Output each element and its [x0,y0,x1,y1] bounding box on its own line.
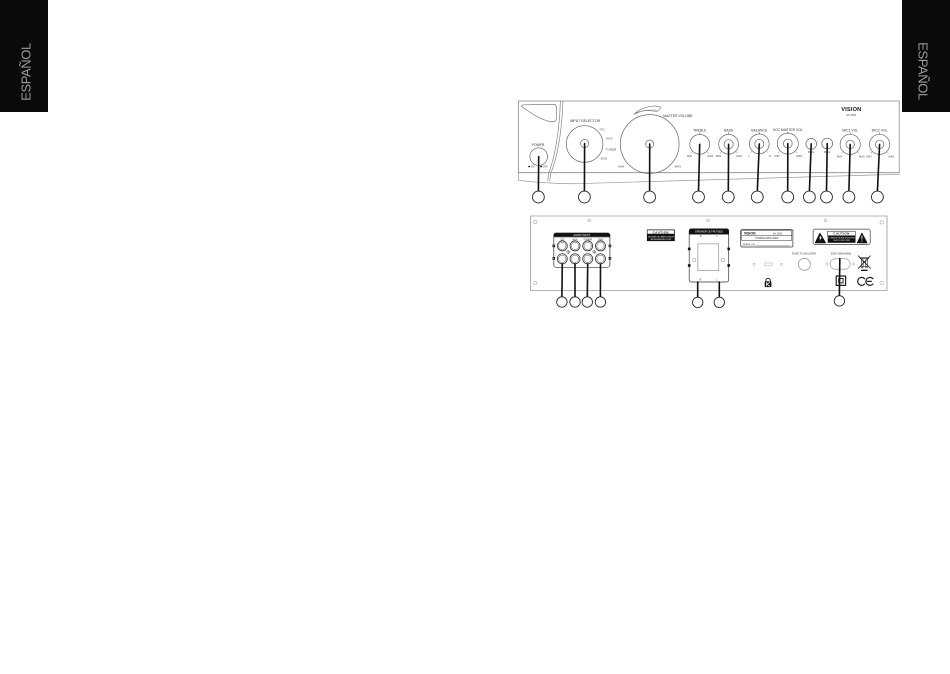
svg-text:MAX: MAX [737,154,743,158]
svg-text:BEFORE REMOVING COVER: BEFORE REMOVING COVER [651,239,672,241]
svg-text:AV-1500: AV-1500 [773,232,783,235]
svg-text:–PC: –PC [599,128,606,132]
svg-text:▼: ▼ [727,132,729,135]
svg-text:POWER AMPLIFIER: POWER AMPLIFIER [755,237,778,240]
svg-text:SHOCK DO NOT OPEN: SHOCK DO NOT OPEN [833,240,849,242]
svg-text:MAX: MAX [797,154,803,158]
svg-text:MAX: MAX [889,155,895,159]
svg-text:▼: ▼ [878,132,880,135]
svg-text:MAX: MAX [859,155,865,159]
svg-text:R: R [700,235,702,238]
svg-text:ON: ON [531,166,535,168]
svg-text:· TUNER: · TUNER [604,147,617,151]
svg-text:MAX: MAX [708,154,714,158]
svg-text:▼: ▼ [699,132,701,135]
svg-text:OFF: OFF [543,166,548,168]
svg-text:▼: ▼ [787,132,789,135]
svg-text:SPEAKER OUTPUT(8Ω): SPEAKER OUTPUT(8Ω) [695,231,723,234]
svg-text:▼: ▼ [849,132,851,135]
svg-text:MIN: MIN [837,155,842,159]
svg-text:VISION: VISION [744,232,756,236]
svg-text:MIN: MIN [867,155,872,159]
svg-text:VISION: VISION [841,107,861,113]
svg-text:SERIAL NO.:: SERIAL NO.: [743,243,757,246]
svg-text:–DVD: –DVD [599,156,608,160]
svg-text:MIN ·: MIN · [619,165,626,169]
svg-text:· AUX: · AUX [605,137,613,141]
svg-text:· MAX: · MAX [673,165,681,169]
svg-text:MIN: MIN [775,154,780,158]
svg-text:MIN: MIN [716,154,721,158]
svg-text:CAUTION: CAUTION [833,232,849,236]
svg-text:MASTER VOLUME: MASTER VOLUME [663,114,693,118]
svg-text:POWER: POWER [532,143,545,147]
svg-text:FUSE T3.15AL/250V: FUSE T3.15AL/250V [792,252,816,256]
svg-text:MIN: MIN [687,154,692,158]
svg-text:INPUT SELECTOR: INPUT SELECTOR [570,119,601,123]
svg-text:CAUTION: CAUTION [653,230,669,234]
svg-text:AUDIO INPUT: AUDIO INPUT [573,233,590,237]
svg-text:▼: ▼ [758,132,760,135]
svg-text:230V~50Hz/60Hz: 230V~50Hz/60Hz [831,251,852,255]
svg-text:TO REDUCE THE RISK OF ELECTRIC: TO REDUCE THE RISK OF ELECTRIC [828,238,855,240]
svg-text:AV-1500: AV-1500 [846,113,856,117]
svg-text:R: R [769,154,771,158]
